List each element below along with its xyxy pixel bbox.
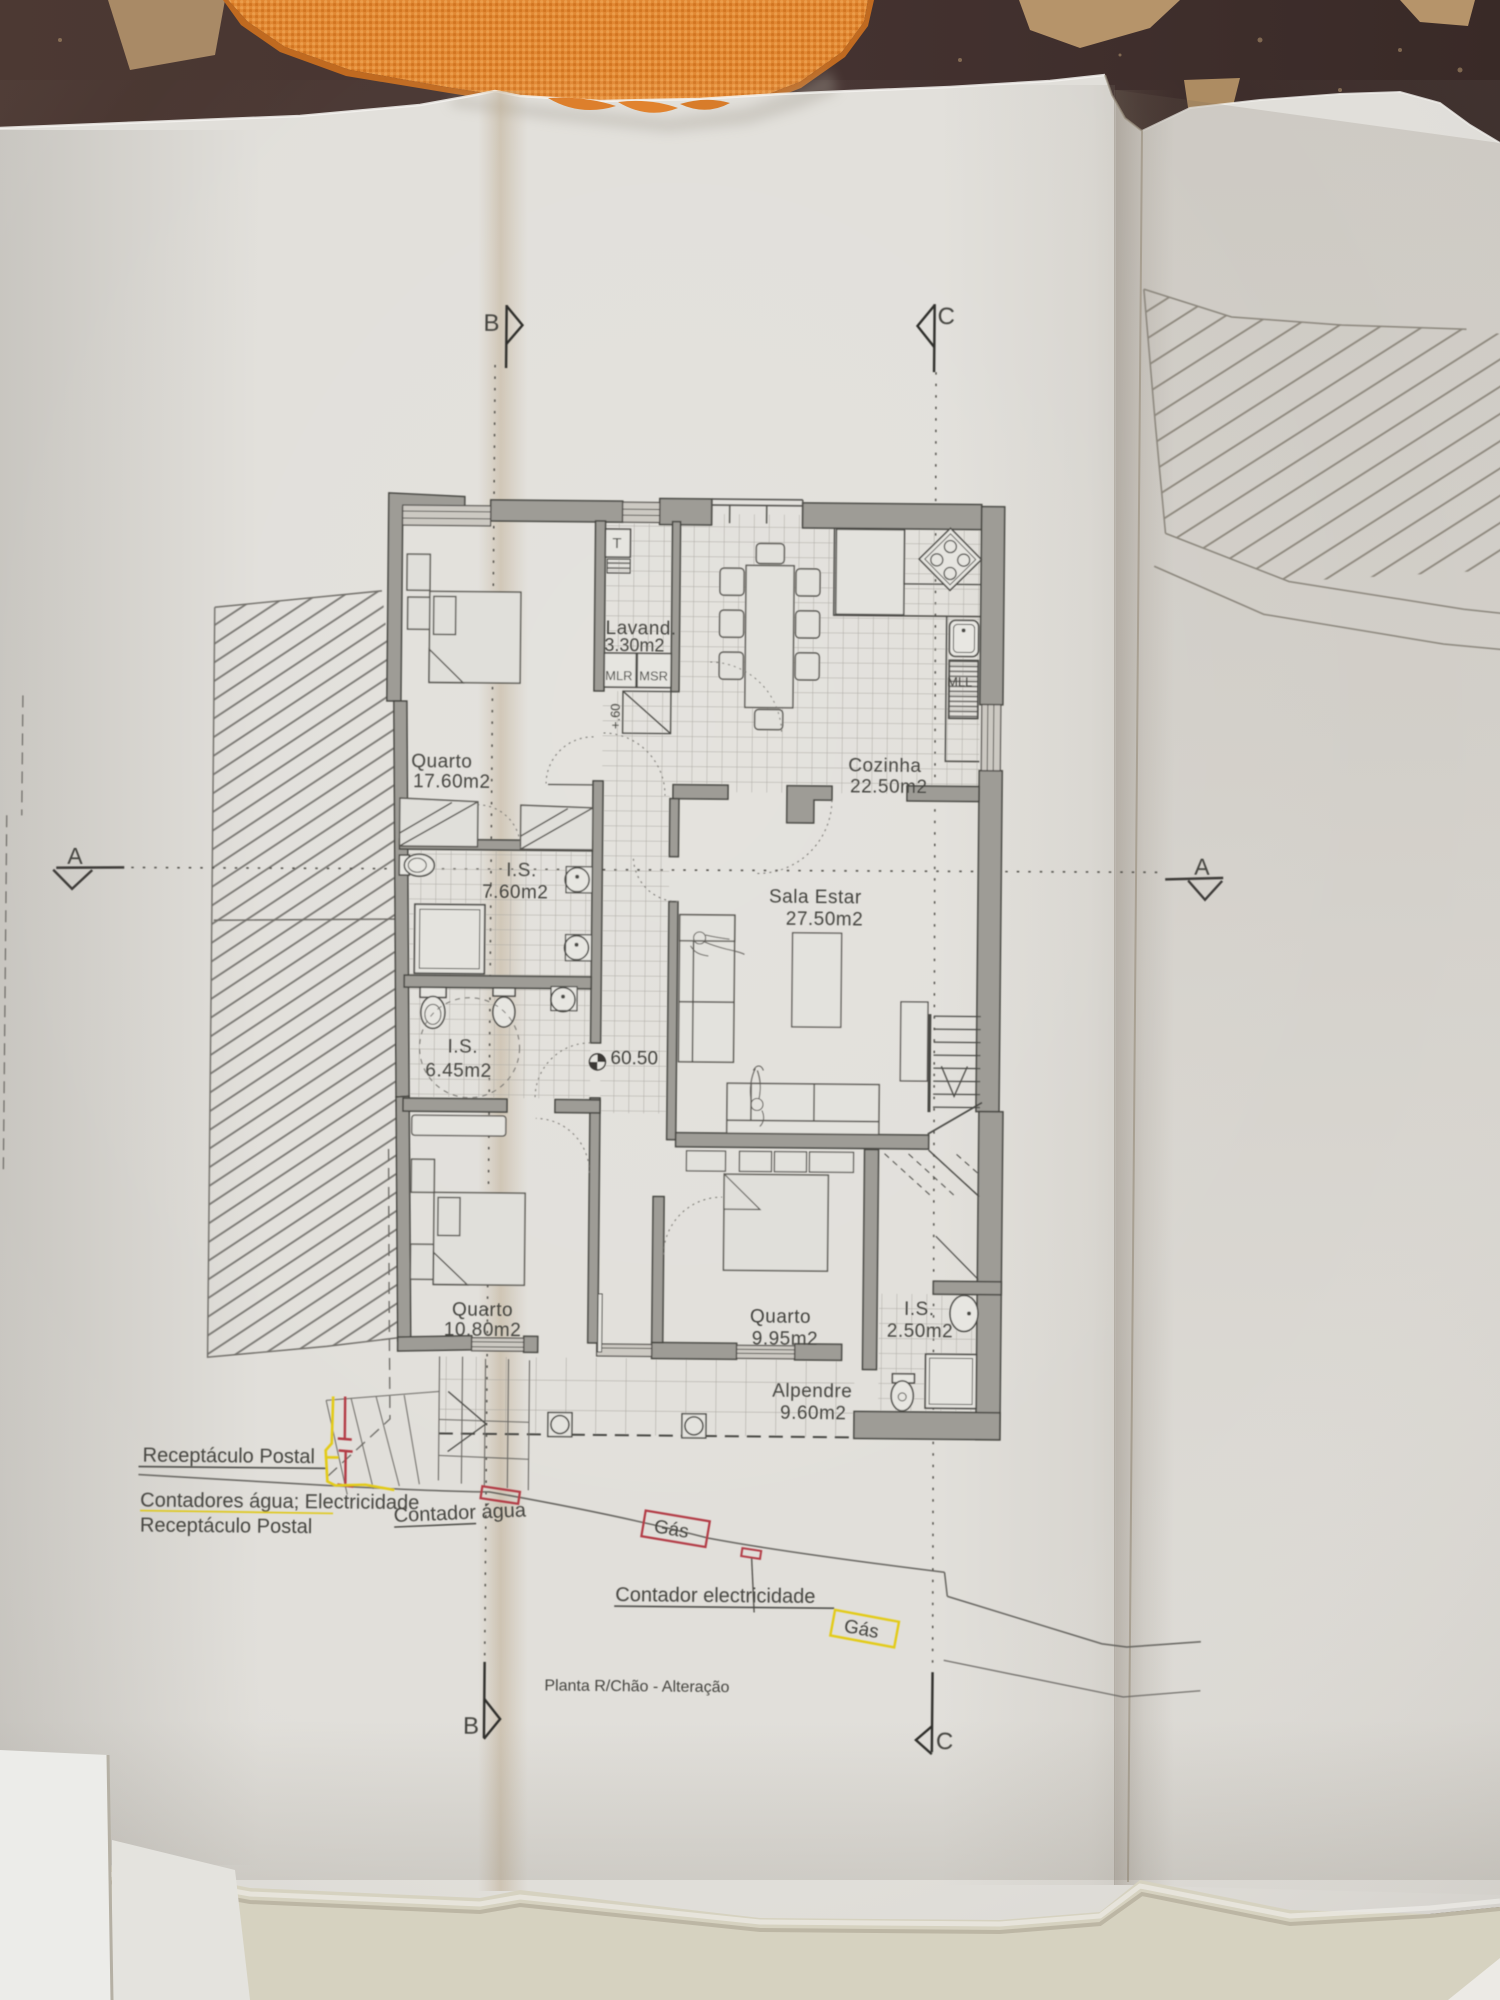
svg-text:27.50m2: 27.50m2 [786,909,864,931]
svg-text:I.S.: I.S. [506,860,537,881]
svg-text:9.95m2: 9.95m2 [752,1328,819,1350]
svg-text:10.80m2: 10.80m2 [444,1319,522,1341]
svg-text:MLR: MLR [605,668,633,683]
svg-text:Receptáculo Postal: Receptáculo Postal [143,1445,316,1469]
svg-text:Quarto: Quarto [411,751,472,773]
svg-text:B: B [483,310,499,337]
svg-text:C: C [936,1728,954,1755]
svg-text:MSR: MSR [639,668,668,683]
svg-text:T: T [612,535,621,552]
svg-text:7.60m2: 7.60m2 [482,882,549,904]
svg-text:60.50: 60.50 [610,1048,658,1069]
svg-text:Contador electricidade: Contador electricidade [615,1584,815,1608]
svg-text:Quarto: Quarto [452,1300,513,1322]
svg-text:17.60m2: 17.60m2 [413,771,491,793]
svg-text:Cozinha: Cozinha [848,755,921,777]
svg-text:I.S.: I.S. [904,1299,935,1320]
svg-text:Alpendre: Alpendre [772,1381,852,1403]
svg-text:MLL: MLL [947,674,972,689]
svg-text:C: C [937,303,955,330]
svg-text:A: A [67,843,83,869]
svg-text:Receptáculo Postal: Receptáculo Postal [140,1515,313,1539]
svg-text:22.50m2: 22.50m2 [850,776,928,798]
svg-text:Planta R/Chão - Alteração: Planta R/Chão - Alteração [544,1677,729,1696]
svg-text:I.S.: I.S. [447,1036,478,1057]
svg-text:B: B [463,1713,479,1740]
svg-text:+.60: +.60 [608,703,623,729]
svg-text:3.30m2: 3.30m2 [604,635,664,656]
svg-text:9.60m2: 9.60m2 [780,1403,847,1425]
svg-text:Quarto: Quarto [750,1306,811,1328]
svg-text:A: A [1194,854,1210,880]
svg-text:Sala Estar: Sala Estar [769,887,862,909]
svg-text:2.50m2: 2.50m2 [887,1321,954,1343]
svg-text:6.45m2: 6.45m2 [425,1060,492,1082]
